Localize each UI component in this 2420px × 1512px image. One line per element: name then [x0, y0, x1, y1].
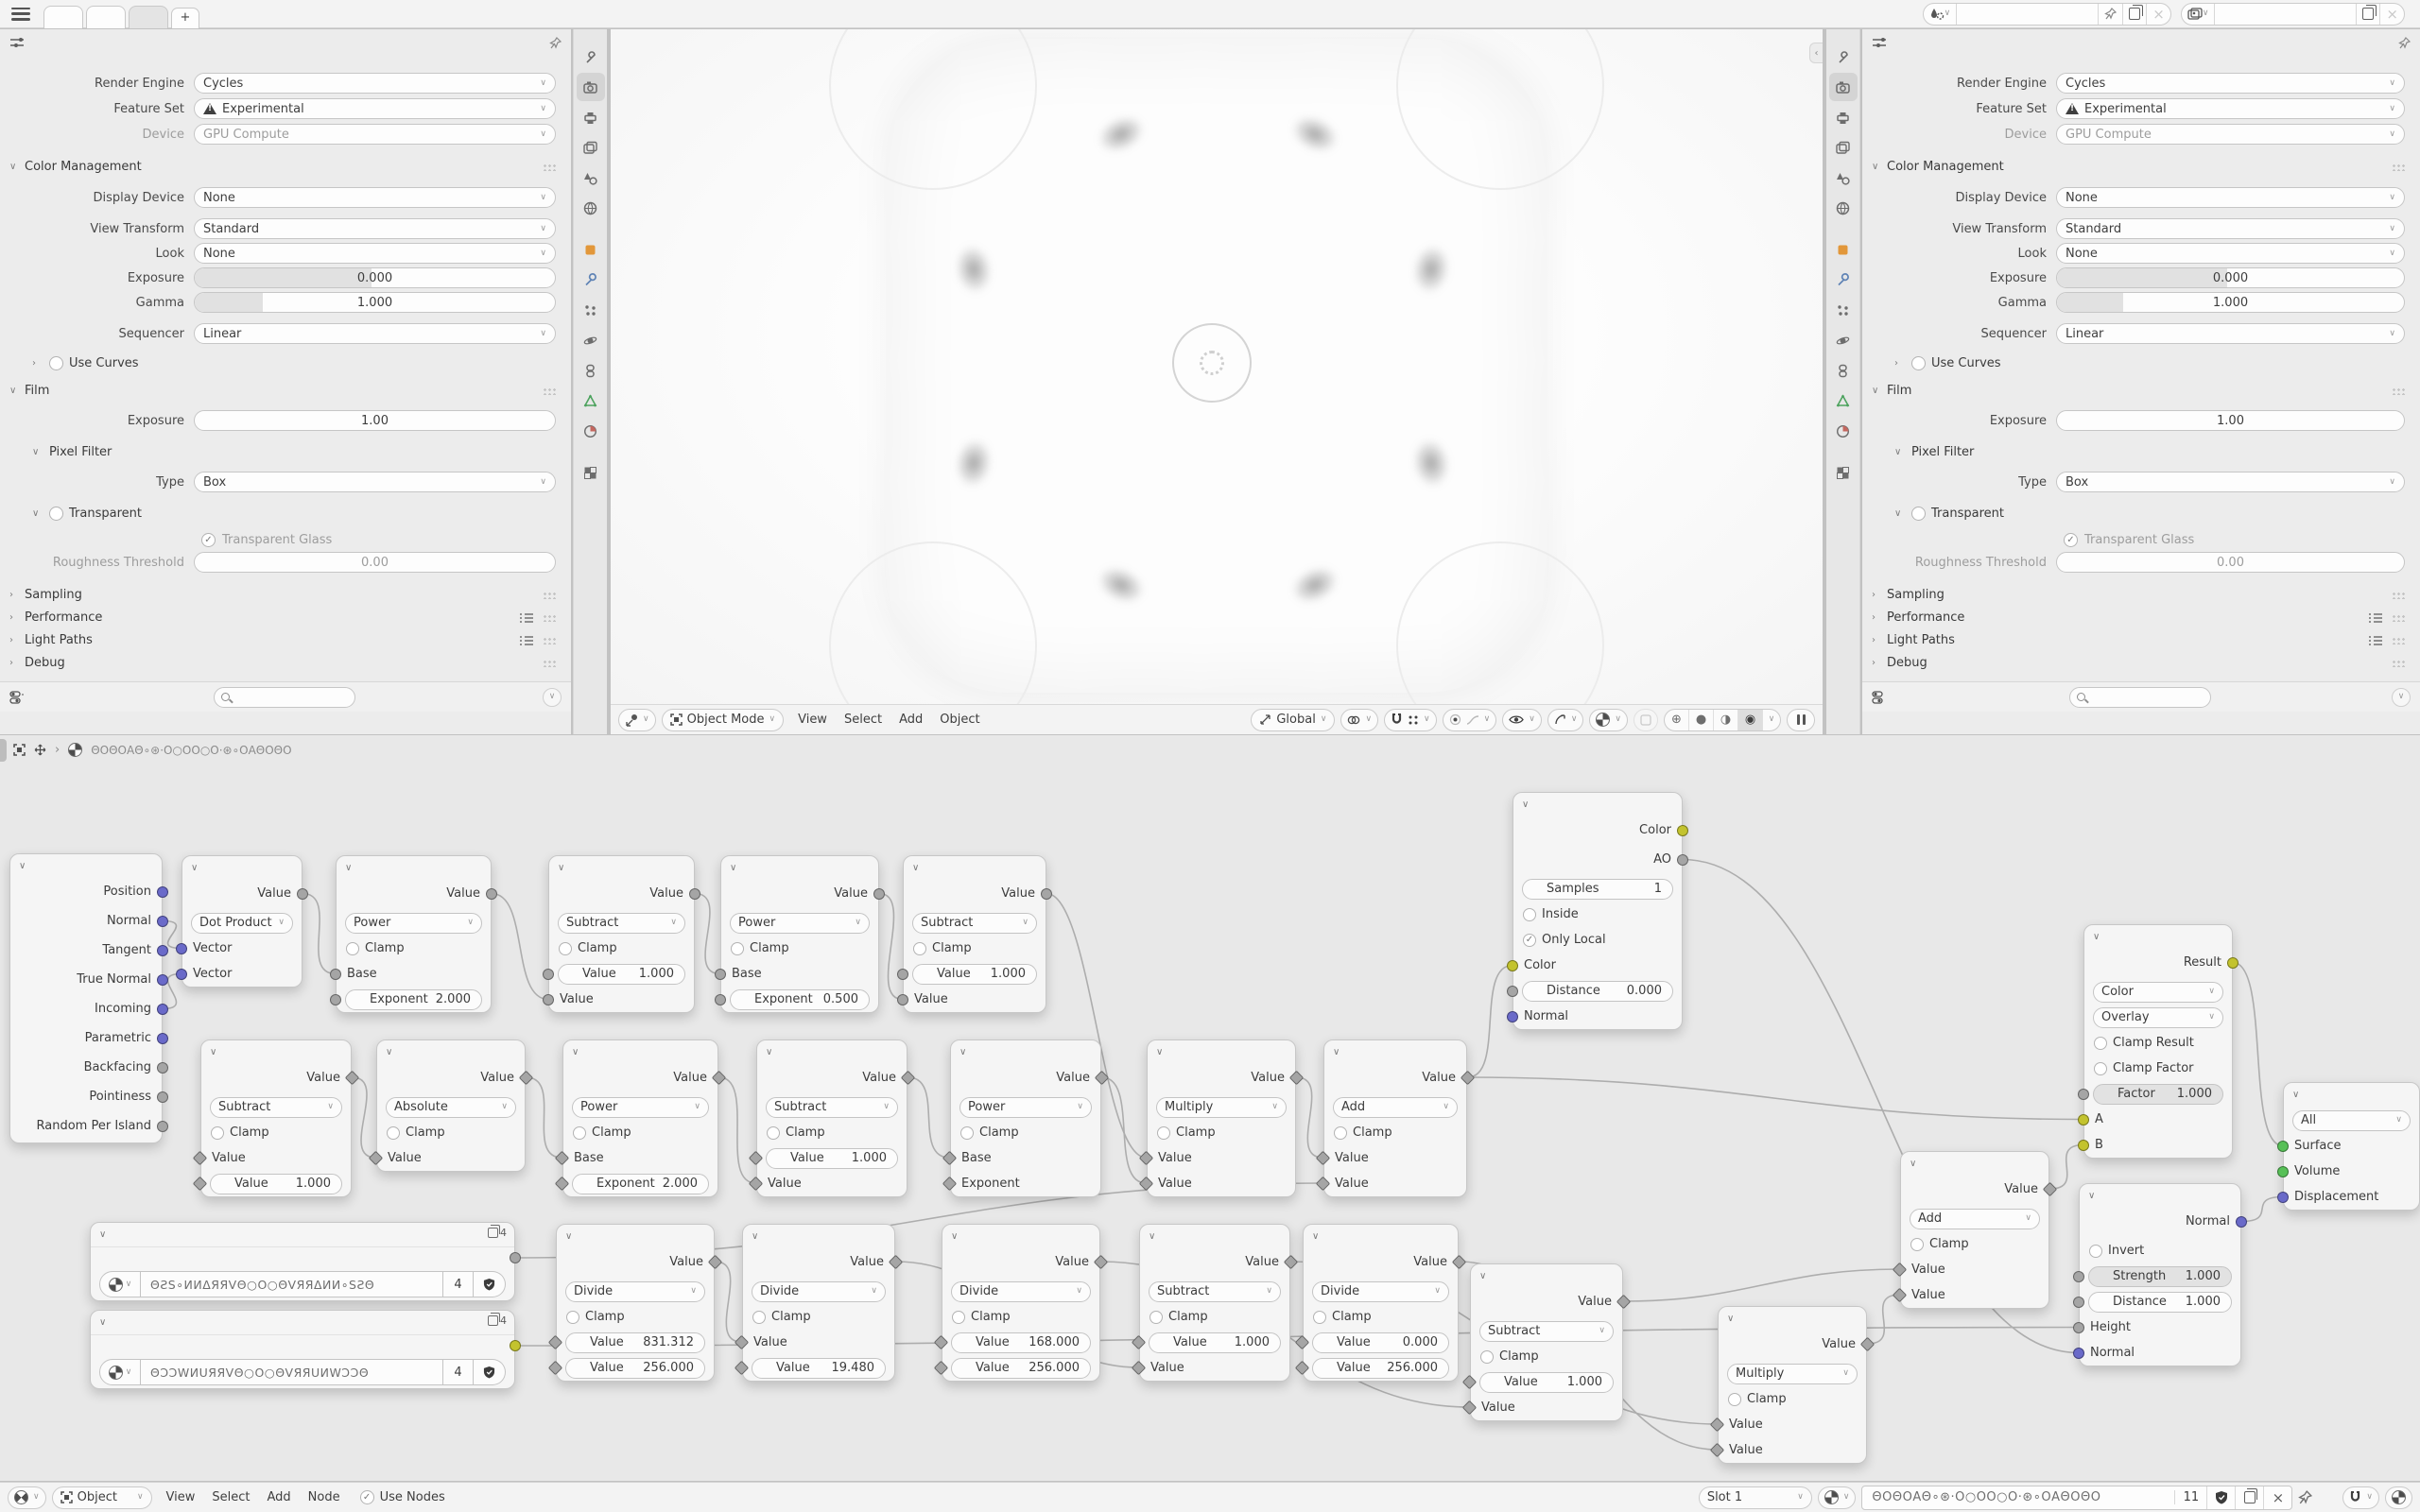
drag-grip-icon[interactable]: [543, 637, 558, 644]
view-layer-name-field[interactable]: [2215, 4, 2357, 25]
slider-gamma[interactable]: 1.000: [194, 292, 556, 313]
node-select-subtract[interactable]: Subtract∨: [558, 913, 685, 934]
shader-type-dropdown[interactable]: Object ∨: [52, 1486, 152, 1509]
socket-v1[interactable]: [543, 969, 554, 980]
sidebar-collapse-tab[interactable]: ‹: [1809, 43, 1823, 63]
node-subE[interactable]: ∨ValueSubtract∨ClampValue1.000Value: [1139, 1224, 1290, 1382]
pin-icon[interactable]: [2099, 4, 2123, 25]
checkbox-clamp[interactable]: [1334, 1126, 1347, 1140]
socket-out[interactable]: [889, 1254, 904, 1269]
node-dot[interactable]: ∨ValueDot Product∨VectorVector: [181, 855, 302, 988]
section-film[interactable]: ∨Film: [1862, 384, 2420, 398]
node-field-value[interactable]: Value1.000: [1149, 1332, 1281, 1353]
socket-out[interactable]: [689, 888, 700, 900]
node-menu-add[interactable]: Add: [259, 1490, 300, 1504]
node-powD[interactable]: ∨ValuePower∨ClampBaseExponent: [950, 1039, 1101, 1197]
select-display-device[interactable]: None∨: [194, 187, 556, 208]
checkbox-clamp[interactable]: [1910, 1238, 1924, 1251]
mode-dropdown[interactable]: Object Mode ∨: [662, 709, 785, 731]
socket-v1[interactable]: [1710, 1417, 1725, 1432]
collapse-icon[interactable]: ∨: [1910, 1160, 1916, 1169]
select-type[interactable]: Box∨: [2056, 472, 2405, 492]
drag-grip-icon[interactable]: [2392, 387, 2407, 395]
node-select-divide[interactable]: Divide∨: [565, 1281, 705, 1302]
properties-tab-world[interactable]: [1829, 194, 1858, 222]
section-color-management[interactable]: ∨Color Management: [1862, 160, 2420, 174]
node-header[interactable]: ∨4: [91, 1223, 514, 1247]
socket-out[interactable]: [1284, 1254, 1299, 1269]
socket-v1[interactable]: [897, 969, 908, 980]
socket-exp[interactable]: [715, 994, 726, 1005]
collapse-icon[interactable]: ∨: [766, 1048, 772, 1057]
socket-base[interactable]: [715, 969, 726, 980]
socket-out[interactable]: [1289, 1070, 1305, 1085]
properties-tab-view-layer[interactable]: [1829, 133, 1858, 162]
properties-tab-physics[interactable]: [1829, 326, 1858, 354]
socket-v2[interactable]: [1462, 1400, 1478, 1415]
properties-tab-scene[interactable]: [577, 163, 605, 192]
node-header[interactable]: ∨4: [91, 1311, 514, 1335]
properties-search-input[interactable]: [2069, 687, 2211, 708]
socket-normal[interactable]: [157, 916, 168, 927]
checkbox-clamp[interactable]: [573, 1126, 586, 1140]
subsection-transparent[interactable]: ∨Transparent: [32, 507, 571, 521]
checkbox-clamp[interactable]: [952, 1311, 965, 1324]
node-header[interactable]: ∨: [2080, 1184, 2240, 1209]
section-film[interactable]: ∨Film: [0, 384, 571, 398]
node-tex1[interactable]: ∨4∨ΘƧS∘ИИΔЯЯVΘ○Ο○ΘVЯЯΔИИ∘SƧΘ4: [90, 1222, 515, 1301]
select-view-transform[interactable]: Standard∨: [194, 218, 556, 239]
socket-v1[interactable]: [369, 1150, 384, 1165]
drag-grip-icon[interactable]: [2392, 660, 2407, 667]
socket-v2[interactable]: [1139, 1176, 1154, 1191]
properties-tab-view-layer[interactable]: [577, 133, 605, 162]
checkbox-clamp[interactable]: [211, 1126, 224, 1140]
node-select-add[interactable]: Add∨: [1333, 1097, 1458, 1118]
socket-out[interactable]: [486, 888, 497, 900]
node-field-value[interactable]: Value256.000: [951, 1358, 1091, 1379]
node-out[interactable]: ∨All∨SurfaceVolumeDisplacement: [2283, 1082, 2420, 1211]
socket-exp[interactable]: [555, 1176, 570, 1191]
properties-tab-tool[interactable]: [1829, 43, 1858, 71]
collapse-icon[interactable]: ∨: [2093, 933, 2100, 942]
material-slot-dropdown[interactable]: Slot 1 ∨: [1699, 1486, 1812, 1509]
collapse-icon[interactable]: ∨: [2088, 1192, 2095, 1201]
socket-out[interactable]: [510, 1252, 521, 1263]
collapse-icon[interactable]: ∨: [210, 1048, 216, 1057]
node-header[interactable]: ∨: [549, 856, 694, 881]
node-header[interactable]: ∨: [563, 1040, 717, 1065]
field-exposure[interactable]: 1.00: [2056, 410, 2405, 431]
shading-solid-button[interactable]: ●: [1689, 710, 1714, 730]
node-snapping-toggle[interactable]: ∨: [2342, 1486, 2379, 1509]
socket-out[interactable]: [510, 1340, 521, 1351]
collapse-icon[interactable]: ∨: [191, 864, 198, 873]
node-field-value[interactable]: Value831.312: [565, 1332, 705, 1353]
pin-icon[interactable]: [2398, 37, 2411, 49]
select-look[interactable]: None∨: [194, 243, 556, 264]
socket-out[interactable]: [2236, 1216, 2247, 1228]
node-header[interactable]: ∨: [1901, 1152, 2048, 1177]
select-sequencer[interactable]: Linear∨: [194, 323, 556, 344]
properties-tab-object-data[interactable]: [1829, 387, 1858, 415]
properties-tab-world[interactable]: [577, 194, 605, 222]
scene-selector[interactable]: ∨ ×: [1923, 3, 2171, 26]
slider-gamma[interactable]: 1.000: [2056, 292, 2405, 313]
view-layer-selector[interactable]: ∨ ×: [2181, 3, 2405, 26]
checkbox-clamp[interactable]: [960, 1126, 974, 1140]
socket-v2[interactable]: [1893, 1287, 1908, 1302]
socket-base[interactable]: [555, 1150, 570, 1165]
node-menu-select[interactable]: Select: [203, 1490, 258, 1504]
socket-dist[interactable]: [1507, 986, 1518, 997]
checkbox-clamp[interactable]: [1728, 1393, 1741, 1406]
socket-tangent[interactable]: [157, 945, 168, 956]
select-device[interactable]: GPU Compute∨: [2056, 124, 2405, 145]
workspace-tab-1[interactable]: [43, 6, 83, 28]
drag-grip-icon[interactable]: [543, 592, 558, 599]
checkbox-clamp-factor[interactable]: [2094, 1062, 2107, 1075]
socket-v1[interactable]: [193, 1150, 208, 1165]
add-workspace-button[interactable]: +: [171, 8, 199, 28]
node-menu-node[interactable]: Node: [300, 1490, 349, 1504]
section-sampling[interactable]: ›Sampling: [1862, 588, 2420, 602]
socket-out[interactable]: [873, 888, 885, 900]
node-field-strength[interactable]: Strength1.000: [2088, 1266, 2232, 1287]
drag-grip-icon[interactable]: [2392, 614, 2407, 622]
checkbox-clamp[interactable]: [387, 1126, 400, 1140]
shader-node-editor[interactable]: ∨PositionNormalTangentTrue NormalIncomin…: [0, 735, 2420, 1481]
material-users-count[interactable]: 11: [2174, 1490, 2206, 1504]
section-performance[interactable]: ›Performance: [1862, 610, 2420, 625]
properties-tab-particles[interactable]: [577, 296, 605, 324]
socket-position[interactable]: [157, 886, 168, 898]
properties-tab-object-data[interactable]: [577, 387, 605, 415]
node-header[interactable]: ∨: [10, 854, 162, 879]
node-field-value[interactable]: Value1.000: [912, 964, 1037, 985]
node-header[interactable]: ∨: [721, 856, 878, 881]
socket-out[interactable]: [1095, 1070, 1110, 1085]
properties-tab-constraints[interactable]: [1829, 356, 1858, 385]
socket-v1[interactable]: [548, 1334, 563, 1349]
node-field-distance[interactable]: Distance1.000: [2088, 1292, 2232, 1313]
node-menu-view[interactable]: View: [158, 1490, 204, 1504]
properties-tab-object[interactable]: [1829, 235, 1858, 264]
checkbox-transparent-glass[interactable]: ✓: [201, 533, 216, 547]
shading-material-button[interactable]: ◑: [1714, 710, 1738, 730]
socket-out[interactable]: [1461, 1070, 1476, 1085]
socket-surface[interactable]: [2277, 1141, 2289, 1152]
socket-v2[interactable]: [749, 1176, 764, 1191]
browse-material-dropdown[interactable]: ∨: [1818, 1486, 1857, 1509]
transform-orientation-dropdown[interactable]: Global ∨: [1251, 709, 1335, 731]
checkbox-use-curves[interactable]: [49, 356, 63, 370]
socket-v2[interactable]: [897, 994, 908, 1005]
section-performance[interactable]: ›Performance: [0, 610, 571, 625]
node-select-subtract[interactable]: Subtract∨: [766, 1097, 898, 1118]
socket-volume[interactable]: [2277, 1166, 2289, 1177]
properties-options-button[interactable]: ∨: [2392, 688, 2411, 707]
checkbox-clamp[interactable]: [346, 942, 359, 955]
gizmos-dropdown[interactable]: ∨: [1547, 709, 1584, 731]
node-header[interactable]: ∨: [1719, 1307, 1866, 1332]
image-users-count[interactable]: 4: [443, 1359, 474, 1385]
socket-v2[interactable]: [1316, 1176, 1331, 1191]
socket-v1[interactable]: [934, 1334, 949, 1349]
node-subD[interactable]: ∨ValueSubtract∨ClampValue1.000Value: [756, 1039, 907, 1197]
new-material-button[interactable]: [2235, 1486, 2263, 1509]
node-field-factor[interactable]: Factor1.000: [2093, 1084, 2223, 1105]
collapse-icon[interactable]: ∨: [1149, 1232, 1155, 1242]
select-feature-set[interactable]: Experimental∨: [2056, 98, 2405, 119]
node-select-power[interactable]: Power∨: [572, 1097, 709, 1118]
checkbox-clamp-result[interactable]: [2094, 1037, 2107, 1050]
checkbox-invert[interactable]: [2089, 1245, 2102, 1258]
socket-b[interactable]: [2078, 1140, 2089, 1151]
drag-grip-icon[interactable]: [543, 163, 558, 171]
collapse-icon[interactable]: ∨: [959, 1048, 966, 1057]
node-field-value[interactable]: Value256.000: [1312, 1358, 1449, 1379]
section-light-paths[interactable]: ›Light Paths: [0, 633, 571, 647]
collapse-icon[interactable]: ∨: [572, 1048, 579, 1057]
section-color-management[interactable]: ∨Color Management: [0, 160, 571, 174]
node-bump[interactable]: ∨NormalInvertStrength1.000Distance1.000H…: [2079, 1183, 2241, 1366]
socket-truenormal[interactable]: [157, 974, 168, 986]
checkbox-clamp[interactable]: [1313, 1311, 1326, 1324]
node-select-all[interactable]: All∨: [2292, 1110, 2411, 1131]
socket-v2[interactable]: [543, 994, 554, 1005]
socket-v2[interactable]: [735, 1360, 750, 1375]
collapse-icon[interactable]: ∨: [1333, 1048, 1340, 1057]
socket-exp[interactable]: [330, 994, 341, 1005]
subsection-transparent[interactable]: ∨Transparent: [1894, 507, 2420, 521]
slider-exposure[interactable]: 0.000: [2056, 267, 2405, 288]
field-roughness-threshold[interactable]: 0.00: [194, 552, 556, 573]
properties-tab-scene[interactable]: [1829, 163, 1858, 192]
node-header[interactable]: ∨: [377, 1040, 525, 1065]
node-multA[interactable]: ∨ValueMultiply∨ClampValueValue: [1147, 1039, 1296, 1197]
select-display-device[interactable]: None∨: [2056, 187, 2405, 208]
node-select-absolute[interactable]: Absolute∨: [386, 1097, 516, 1118]
properties-search-input[interactable]: [214, 687, 355, 708]
node-header[interactable]: ∨: [2284, 1083, 2419, 1108]
node-header[interactable]: ∨: [182, 856, 302, 881]
properties-editor-icon[interactable]: [9, 36, 25, 49]
node-select-dot-product[interactable]: Dot Product∨: [191, 913, 293, 934]
node-header[interactable]: ∨: [1148, 1040, 1295, 1065]
visibility-dropdown[interactable]: ∨: [1502, 709, 1542, 731]
node-addA[interactable]: ∨ValueAdd∨ClampValueValue: [1323, 1039, 1467, 1197]
viewport-menu-add[interactable]: Add: [890, 713, 931, 727]
socket-out[interactable]: [2227, 957, 2238, 969]
fake-user-shield-icon[interactable]: [474, 1359, 506, 1385]
socket-v1[interactable]: [735, 1334, 750, 1349]
workspace-tab-3[interactable]: [129, 6, 168, 28]
properties-tab-object[interactable]: [577, 235, 605, 264]
checkbox-clamp[interactable]: [559, 942, 572, 955]
socket-parametric[interactable]: [157, 1033, 168, 1044]
collapse-icon[interactable]: ∨: [386, 1048, 392, 1057]
socket-dist[interactable]: [2073, 1297, 2084, 1308]
properties-tab-render[interactable]: [577, 73, 605, 101]
checkbox-clamp[interactable]: [1157, 1126, 1170, 1140]
socket-out[interactable]: [708, 1254, 723, 1269]
socket-v2[interactable]: [548, 1360, 563, 1375]
socket-out[interactable]: [901, 1070, 916, 1085]
collapse-icon[interactable]: ∨: [752, 1232, 758, 1242]
subsection-pixel-filter[interactable]: ∨Pixel Filter: [32, 445, 571, 459]
select-feature-set[interactable]: Experimental∨: [194, 98, 556, 119]
checkbox-clamp[interactable]: [767, 1126, 780, 1140]
socket-v1[interactable]: [1295, 1334, 1310, 1349]
checkbox-only-local[interactable]: ✓: [1523, 934, 1536, 947]
collapse-icon[interactable]: ∨: [912, 864, 919, 873]
properties-tab-tool[interactable]: [577, 43, 605, 71]
collapse-icon[interactable]: ∨: [1156, 1048, 1163, 1057]
select-view-transform[interactable]: Standard∨: [2056, 218, 2405, 239]
checkbox-inside[interactable]: [1523, 908, 1536, 921]
socket-v2[interactable]: [1295, 1360, 1310, 1375]
node-select-subtract[interactable]: Subtract∨: [912, 913, 1037, 934]
node-select-subtract[interactable]: Subtract∨: [1479, 1321, 1614, 1342]
select-look[interactable]: None∨: [2056, 243, 2405, 264]
node-subA[interactable]: ∨ValueSubtract∨ClampValue1.000Value: [548, 855, 695, 1013]
snapping-toggle[interactable]: ∨: [1384, 709, 1437, 731]
node-field-value[interactable]: Value0.000: [1312, 1332, 1449, 1353]
collapse-icon[interactable]: ∨: [951, 1232, 958, 1242]
node-addB[interactable]: ∨ValueAdd∨ClampValueValue: [1900, 1151, 2049, 1309]
node-mix[interactable]: ∨ResultColor∨Overlay∨Clamp ResultClamp F…: [2083, 924, 2233, 1159]
node-select-divide[interactable]: Divide∨: [752, 1281, 886, 1302]
drag-grip-icon[interactable]: [2392, 163, 2407, 171]
node-select-power[interactable]: Power∨: [730, 913, 870, 934]
node-header[interactable]: ∨: [1513, 793, 1682, 817]
collapse-icon[interactable]: ∨: [19, 862, 26, 871]
socket-base[interactable]: [330, 969, 341, 980]
socket-v1[interactable]: [1462, 1374, 1478, 1389]
node-header[interactable]: ∨: [1304, 1225, 1458, 1249]
node-ao[interactable]: ∨ColorAOSamples1Inside✓Only LocalColorDi…: [1512, 792, 1683, 1030]
socket-randisland[interactable]: [157, 1121, 168, 1132]
socket-color_out[interactable]: [1677, 825, 1688, 836]
node-powA[interactable]: ∨ValuePower∨ClampBaseExponent2.000: [336, 855, 492, 1013]
node-field-value[interactable]: Value168.000: [951, 1332, 1091, 1353]
socket-out[interactable]: [1041, 888, 1052, 900]
node-header[interactable]: ∨: [904, 856, 1046, 881]
workspace-tab-2[interactable]: [86, 6, 126, 28]
node-select-overlay[interactable]: Overlay∨: [2093, 1007, 2223, 1028]
node-header[interactable]: ∨: [757, 1040, 907, 1065]
viewport-3d[interactable]: ‹ ∨ Object Mode ∨ ViewSelectAddObject Gl…: [611, 29, 1823, 734]
node-select-multiply[interactable]: Multiply∨: [1727, 1364, 1858, 1384]
section-debug[interactable]: ›Debug: [0, 656, 571, 670]
collapse-icon[interactable]: ∨: [1479, 1272, 1486, 1281]
image-name-field[interactable]: ΘƆƆWИUЯЯVΘ○Ο○ΘVЯЯUИWƆƆΘ: [141, 1359, 443, 1385]
fake-user-shield-icon[interactable]: [2206, 1486, 2235, 1509]
field-roughness-threshold[interactable]: 0.00: [2056, 552, 2405, 573]
node-field-samples[interactable]: Samples1: [1522, 879, 1673, 900]
properties-tab-material[interactable]: [1829, 417, 1858, 445]
node-select-multiply[interactable]: Multiply∨: [1156, 1097, 1287, 1118]
node-field-distance[interactable]: Distance0.000: [1522, 981, 1673, 1002]
node-field-value[interactable]: Value1.000: [1479, 1372, 1614, 1393]
socket-backfacing[interactable]: [157, 1062, 168, 1074]
material-name-field[interactable]: ΘΟΘΟΑΘ∘⊛·Ο○ΟΟ○Ο·⊛∘ΟΑΘΟΘΟ: [1862, 1490, 2174, 1504]
properties-tab-render[interactable]: [1829, 73, 1858, 101]
node-field-value[interactable]: Value1.000: [558, 964, 685, 985]
checkbox-use-curves[interactable]: [1911, 356, 1926, 370]
socket-v1[interactable]: [1139, 1150, 1154, 1165]
socket-out[interactable]: [1616, 1294, 1632, 1309]
socket-factor[interactable]: [2078, 1089, 2089, 1100]
node-field-value[interactable]: Value1.000: [210, 1174, 342, 1194]
node-field-exponent[interactable]: Exponent0.500: [730, 989, 870, 1010]
properties-tab-modifiers[interactable]: [577, 266, 605, 294]
node-field-value[interactable]: Value1.000: [766, 1148, 898, 1169]
node-select-subtract[interactable]: Subtract∨: [210, 1097, 342, 1118]
socket-out[interactable]: [2043, 1181, 2058, 1196]
image-users-count[interactable]: 4: [443, 1271, 474, 1297]
properties-tab-texture[interactable]: [1829, 458, 1858, 487]
node-subF[interactable]: ∨ValueSubtract∨ClampValue1.000Value: [1470, 1263, 1623, 1421]
properties-tab-material[interactable]: [577, 417, 605, 445]
select-render-engine[interactable]: Cycles∨: [2056, 73, 2405, 94]
node-div4[interactable]: ∨ValueDivide∨ClampValue0.000Value256.000: [1303, 1224, 1459, 1382]
snap-target-dropdown[interactable]: ∨: [1340, 709, 1378, 731]
editor-type-icon[interactable]: [1872, 691, 1889, 704]
socket-v2[interactable]: [176, 969, 187, 980]
drag-grip-icon[interactable]: [2392, 637, 2407, 644]
socket-out[interactable]: [1094, 1254, 1109, 1269]
node-div3[interactable]: ∨ValueDivide∨ClampValue168.000Value256.0…: [942, 1224, 1100, 1382]
node-select-add[interactable]: Add∨: [1910, 1209, 2040, 1229]
select-sequencer[interactable]: Linear∨: [2056, 323, 2405, 344]
node-powC[interactable]: ∨ValuePower∨ClampBaseExponent2.000: [562, 1039, 718, 1197]
select-type[interactable]: Box∨: [194, 472, 556, 492]
field-exposure[interactable]: 1.00: [194, 410, 556, 431]
node-header[interactable]: ∨: [337, 856, 491, 881]
checkbox-clamp[interactable]: [752, 1311, 766, 1324]
pin-icon[interactable]: [2298, 1490, 2312, 1504]
node-subB[interactable]: ∨ValueSubtract∨ClampValue1.000Value: [903, 855, 1046, 1013]
node-header[interactable]: ∨: [557, 1225, 714, 1249]
socket-displacement[interactable]: [2277, 1192, 2289, 1203]
viewport-menu-view[interactable]: View: [789, 713, 836, 727]
node-select-divide[interactable]: Divide∨: [951, 1281, 1091, 1302]
socket-v2[interactable]: [1132, 1360, 1147, 1375]
use-nodes-checkbox[interactable]: ✓: [360, 1490, 374, 1504]
drag-grip-icon[interactable]: [543, 660, 558, 667]
socket-v2[interactable]: [1710, 1442, 1725, 1457]
socket-normal_in[interactable]: [2073, 1348, 2084, 1359]
socket-v2[interactable]: [934, 1360, 949, 1375]
properties-tab-constraints[interactable]: [577, 356, 605, 385]
checkbox-transparent[interactable]: [1911, 507, 1926, 521]
overlays-dropdown[interactable]: ∨: [1589, 709, 1628, 731]
checkbox-clamp[interactable]: [566, 1311, 579, 1324]
node-tex2[interactable]: ∨4∨ΘƆƆWИUЯЯVΘ○Ο○ΘVЯЯUИWƆƆΘ4: [90, 1310, 515, 1389]
collapse-icon[interactable]: ∨: [565, 1232, 572, 1242]
socket-out[interactable]: [297, 888, 308, 900]
properties-tab-output[interactable]: [577, 103, 605, 131]
node-select-color[interactable]: Color∨: [2093, 982, 2223, 1003]
pin-icon[interactable]: [549, 37, 562, 49]
collapse-icon[interactable]: ∨: [558, 864, 564, 873]
node-header[interactable]: ∨: [942, 1225, 1099, 1249]
editor-type-dropdown[interactable]: ∨: [8, 1486, 46, 1509]
node-absN[interactable]: ∨ValueAbsolute∨ClampValue: [376, 1039, 526, 1172]
shading-options-chevron[interactable]: ∨: [1763, 710, 1780, 730]
